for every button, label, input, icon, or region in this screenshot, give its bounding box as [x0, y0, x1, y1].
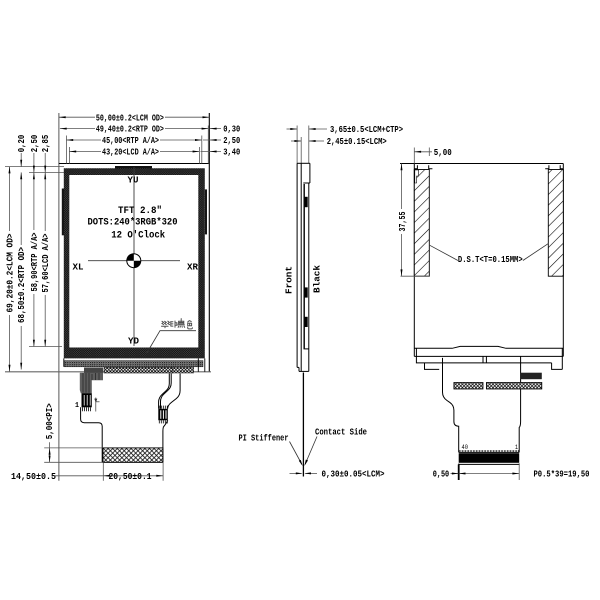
svg-text:0,30: 0,30 [223, 125, 240, 135]
svg-text:3,40: 3,40 [223, 148, 240, 158]
svg-text:57,60<LCD A/A>: 57,60<LCD A/A> [41, 234, 51, 293]
svg-text:0,50: 0,50 [433, 470, 450, 480]
svg-text:Black: Black [312, 264, 322, 293]
svg-text:58,90<RTP A/A>: 58,90<RTP A/A> [30, 233, 40, 292]
svg-text:2,50: 2,50 [223, 136, 240, 146]
svg-text:Front: Front [284, 266, 294, 294]
svg-text:37,55: 37,55 [398, 212, 408, 232]
svg-text:14,50±0.5: 14,50±0.5 [11, 472, 56, 482]
svg-text:20,50±0.1: 20,50±0.1 [109, 472, 153, 482]
svg-text:P0.5*39=19,50: P0.5*39=19,50 [534, 470, 590, 480]
svg-text:1: 1 [75, 402, 79, 410]
svg-text:D.S.T<T=0.15MM>: D.S.T<T=0.15MM> [458, 255, 523, 265]
svg-text:DOTS:240*3RGB*320: DOTS:240*3RGB*320 [88, 217, 178, 229]
svg-text:YU: YU [128, 176, 139, 186]
svg-text:XR: XR [187, 262, 199, 272]
svg-text:XL: XL [73, 262, 84, 272]
svg-text:45,00<RTP A/A>: 45,00<RTP A/A> [102, 136, 159, 146]
svg-text:43,20<LCD A/A>: 43,20<LCD A/A> [102, 148, 159, 158]
svg-text:40: 40 [462, 444, 469, 451]
svg-text:5,00<PI>: 5,00<PI> [45, 403, 55, 439]
svg-text:1: 1 [515, 444, 518, 451]
svg-text:12 O'Clock: 12 O'Clock [111, 230, 165, 242]
svg-text:2,85: 2,85 [41, 135, 51, 153]
svg-text:0,30±0.05<LCM>: 0,30±0.05<LCM> [322, 470, 385, 480]
svg-text:49,40±0.2<RTP OD>: 49,40±0.2<RTP OD> [96, 125, 164, 135]
svg-text:3,65±0.5<LCM+CTP>: 3,65±0.5<LCM+CTP> [330, 125, 403, 135]
svg-text:69,20±0.2<LCM OD>: 69,20±0.2<LCM OD> [6, 234, 16, 313]
svg-text:2,45±0.15<LCM>: 2,45±0.15<LCM> [327, 137, 387, 147]
svg-text:Contact Side: Contact Side [315, 428, 367, 438]
svg-text:0,20: 0,20 [17, 135, 27, 153]
svg-text:PI Stiffener: PI Stiffener [239, 433, 289, 443]
svg-text:2,50: 2,50 [30, 135, 40, 153]
svg-text:5,00: 5,00 [434, 148, 452, 158]
svg-text:TFT 2.8″: TFT 2.8″ [118, 205, 162, 217]
svg-text:68,50±0.2<RTP OD>: 68,50±0.2<RTP OD> [17, 247, 27, 323]
svg-text:50,00±0.2<LCM OD>: 50,00±0.2<LCM OD> [96, 113, 164, 123]
svg-text:YD: YD [128, 337, 140, 347]
